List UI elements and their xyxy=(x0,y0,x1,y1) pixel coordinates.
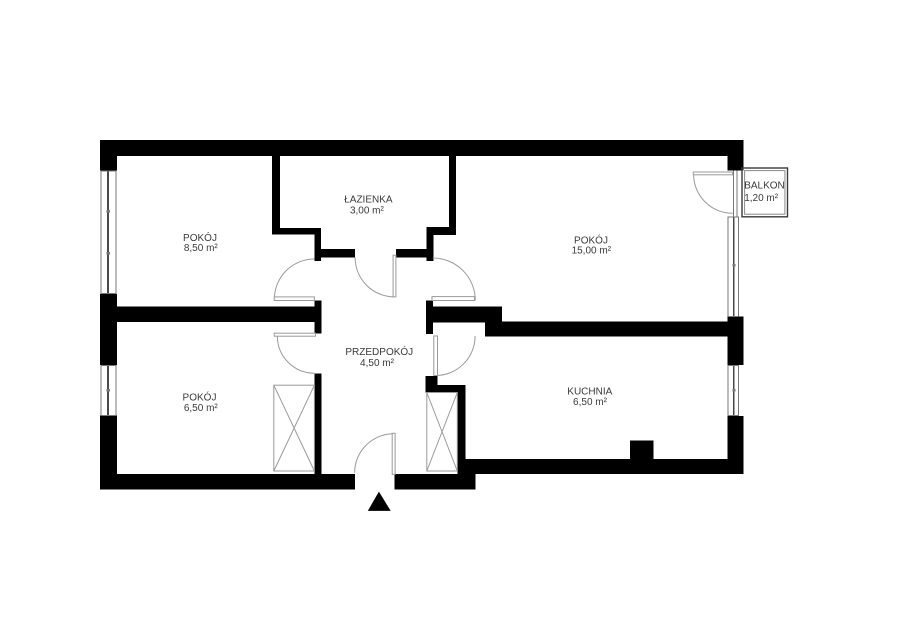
svg-text:POKÓJ: POKÓJ xyxy=(183,390,217,403)
svg-text:15,00 m²: 15,00 m² xyxy=(572,245,612,256)
svg-text:6,50 m²: 6,50 m² xyxy=(184,403,219,414)
svg-text:3,00 m²: 3,00 m² xyxy=(350,205,385,216)
svg-text:8,50 m²: 8,50 m² xyxy=(184,243,219,254)
svg-text:PRZEDPOKÓJ: PRZEDPOKÓJ xyxy=(345,345,413,358)
svg-text:1,20 m²: 1,20 m² xyxy=(744,193,779,204)
svg-text:6,50 m²: 6,50 m² xyxy=(573,397,608,408)
svg-text:BALKON: BALKON xyxy=(744,181,785,192)
svg-text:4,50 m²: 4,50 m² xyxy=(360,358,395,369)
svg-text:ŁAZIENKA: ŁAZIENKA xyxy=(344,194,393,205)
